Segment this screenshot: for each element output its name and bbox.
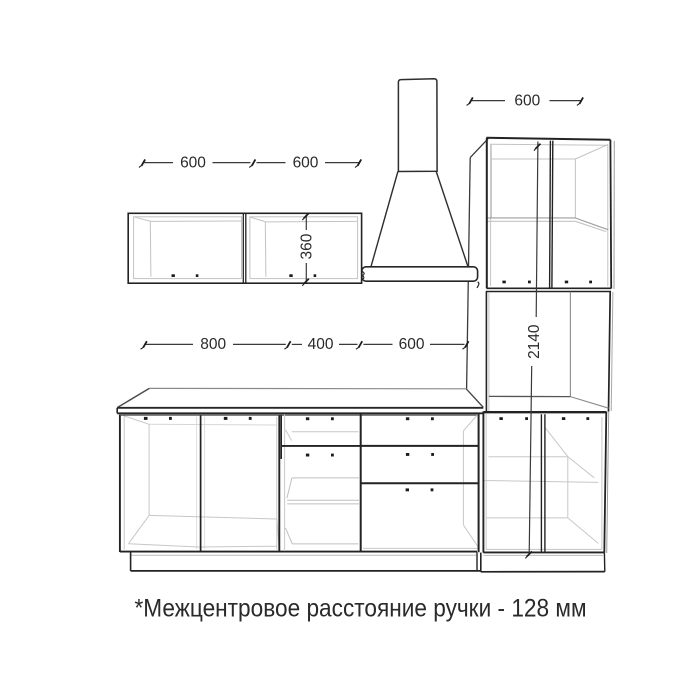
svg-text:600: 600 xyxy=(514,92,540,109)
svg-text:2140: 2140 xyxy=(526,324,543,359)
svg-text:600: 600 xyxy=(399,336,425,353)
svg-text:600: 600 xyxy=(180,154,206,171)
svg-text:600: 600 xyxy=(293,154,319,171)
svg-text:360: 360 xyxy=(298,233,315,259)
svg-text:800: 800 xyxy=(200,336,226,353)
svg-text:400: 400 xyxy=(308,336,334,353)
svg-text:*Межцентровое расстояние ручки: *Межцентровое расстояние ручки - 128 мм xyxy=(135,595,587,623)
